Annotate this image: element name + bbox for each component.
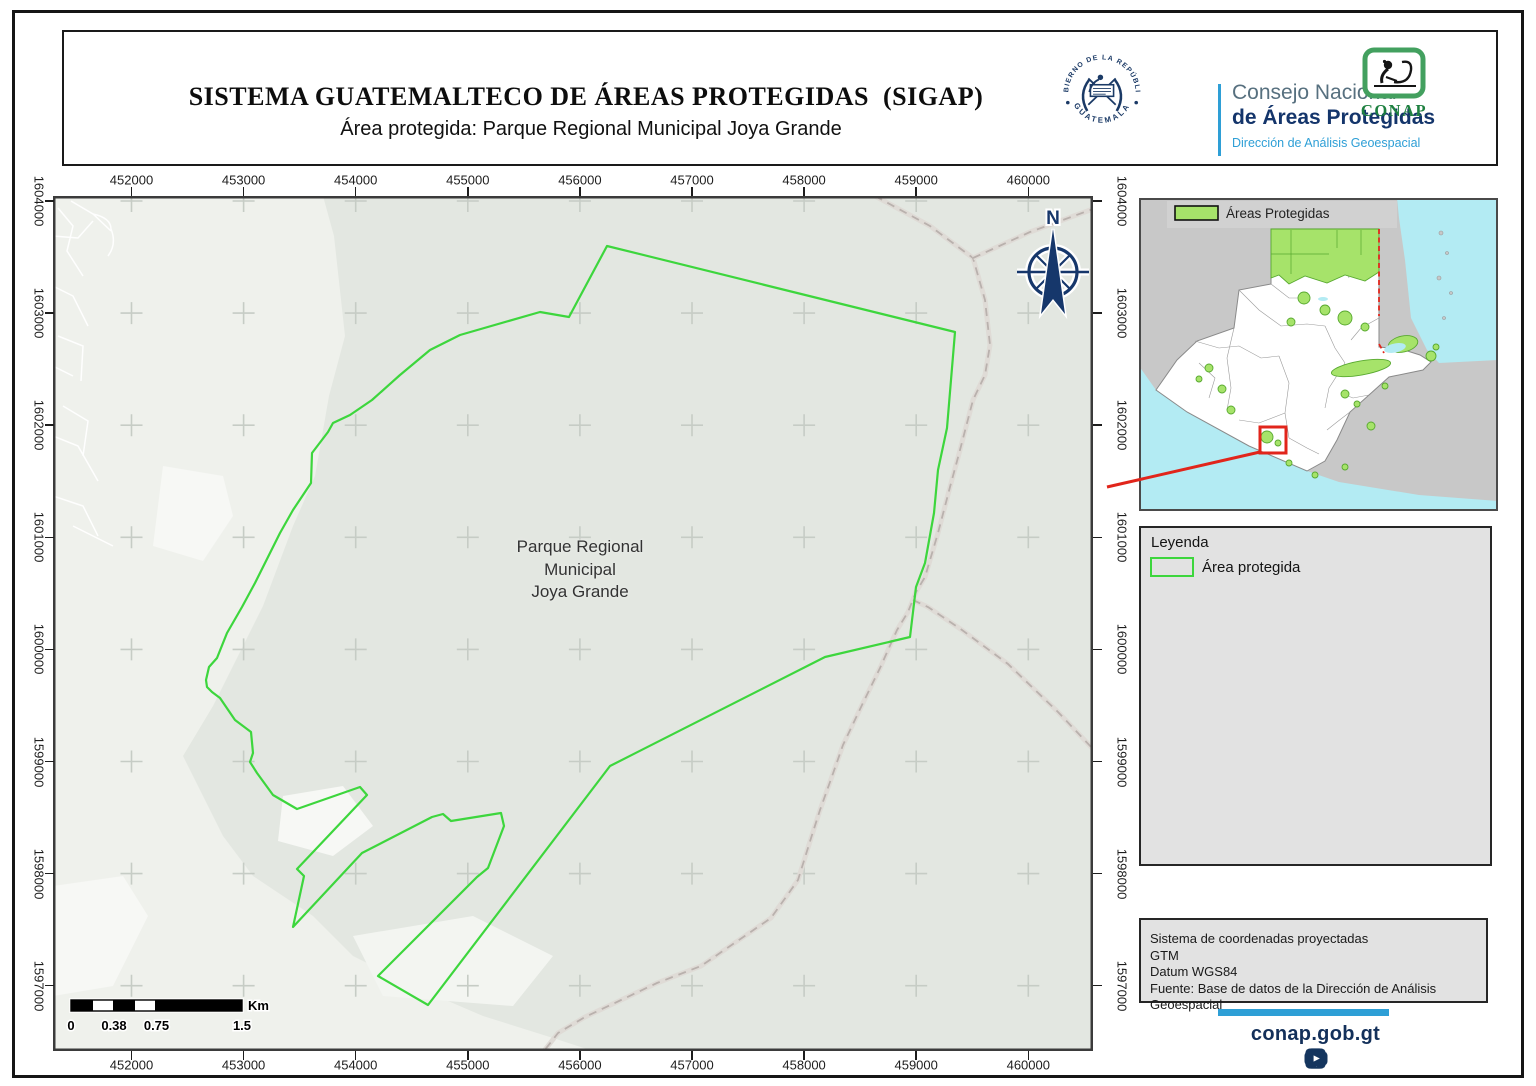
website-url: conap.gob.gt bbox=[1139, 1023, 1492, 1046]
map-sheet: SISTEMA GUATEMALTECO DE ÁREAS PROTEGIDAS… bbox=[0, 0, 1536, 1086]
org-unit: Dirección de Análisis Geoespacial bbox=[1232, 136, 1420, 150]
protected-area-name: Parque Regional Municipal Joya Grande bbox=[517, 536, 644, 604]
scalebar-unit: Km bbox=[248, 998, 269, 1013]
legend-item-label: Área protegida bbox=[1202, 559, 1300, 576]
protected-area-swatch bbox=[1150, 557, 1194, 577]
coordinate-system-info: Sistema de coordenadas proyectadas GTM D… bbox=[1139, 918, 1488, 1003]
legend: Leyenda Área protegida bbox=[1139, 526, 1492, 866]
header: SISTEMA GUATEMALTECO DE ÁREAS PROTEGIDAS… bbox=[62, 30, 1498, 166]
scalebar-label: 0 bbox=[67, 1018, 74, 1033]
government-seal: GOBIERNO DE LA REPÚBLICA GUATEMALA bbox=[1062, 50, 1142, 130]
legend-title: Leyenda bbox=[1151, 534, 1209, 551]
main-map: N 00.380.751.5Km bbox=[53, 196, 1093, 1051]
page-subtitle: Área protegida: Parque Regional Municipa… bbox=[126, 118, 1056, 141]
conap-wordmark: CONAP bbox=[1361, 101, 1427, 120]
info-line: Sistema de coordenadas proyectadas bbox=[1150, 931, 1486, 948]
scalebar-label: 0.38 bbox=[101, 1018, 126, 1033]
conap-logo: CONAP bbox=[1360, 46, 1428, 130]
scalebar-label: 1.5 bbox=[233, 1018, 251, 1033]
header-divider bbox=[1218, 84, 1221, 156]
youtube-icon bbox=[1303, 1047, 1329, 1070]
info-line: Datum WGS84 bbox=[1150, 964, 1486, 981]
info-line: GTM bbox=[1150, 948, 1486, 965]
north-label: N bbox=[1046, 208, 1060, 229]
scalebar-label: 0.75 bbox=[144, 1018, 169, 1033]
page-title: SISTEMA GUATEMALTECO DE ÁREAS PROTEGIDAS… bbox=[126, 82, 1046, 112]
footer-accent-bar bbox=[1218, 1009, 1389, 1016]
